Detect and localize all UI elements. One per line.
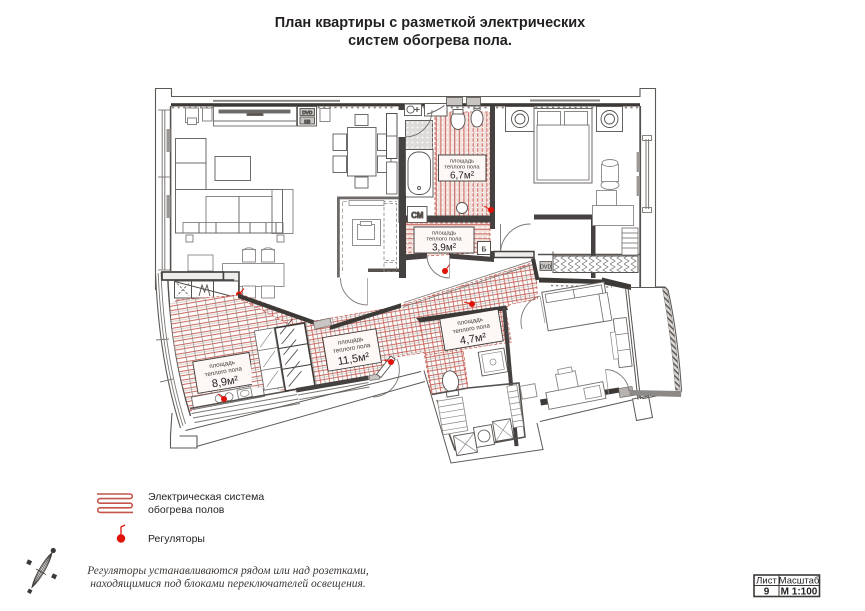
- svg-text:Лист: Лист: [756, 576, 777, 587]
- svg-text:DVD: DVD: [540, 265, 551, 271]
- svg-text:Б: Б: [481, 247, 486, 254]
- svg-text:обогрева полов: обогрева полов: [148, 504, 225, 516]
- svg-text:6,7м²: 6,7м²: [450, 171, 475, 182]
- svg-text:3,9м²: 3,9м²: [432, 243, 457, 254]
- svg-text:систем обогрева пола.: систем обогрева пола.: [348, 33, 512, 49]
- svg-text:М 1:100: М 1:100: [781, 587, 818, 598]
- svg-text:Регуляторы устанавливаются ряд: Регуляторы устанавливаются рядом или над…: [86, 565, 369, 577]
- svg-text:КВ: КВ: [304, 119, 310, 125]
- svg-text:СМ: СМ: [411, 211, 424, 220]
- svg-text:Регуляторы: Регуляторы: [148, 533, 205, 545]
- svg-text:Масштаб: Масштаб: [779, 576, 820, 587]
- svg-text:DVD: DVD: [302, 110, 313, 116]
- svg-text:План квартиры с разметкой элек: План квартиры с разметкой электрических: [275, 15, 586, 31]
- svg-text:находящимися под блоками перек: находящимися под блоками переключателей …: [90, 577, 366, 590]
- svg-text:9: 9: [764, 587, 770, 598]
- svg-text:Электрическая система: Электрическая система: [148, 491, 264, 503]
